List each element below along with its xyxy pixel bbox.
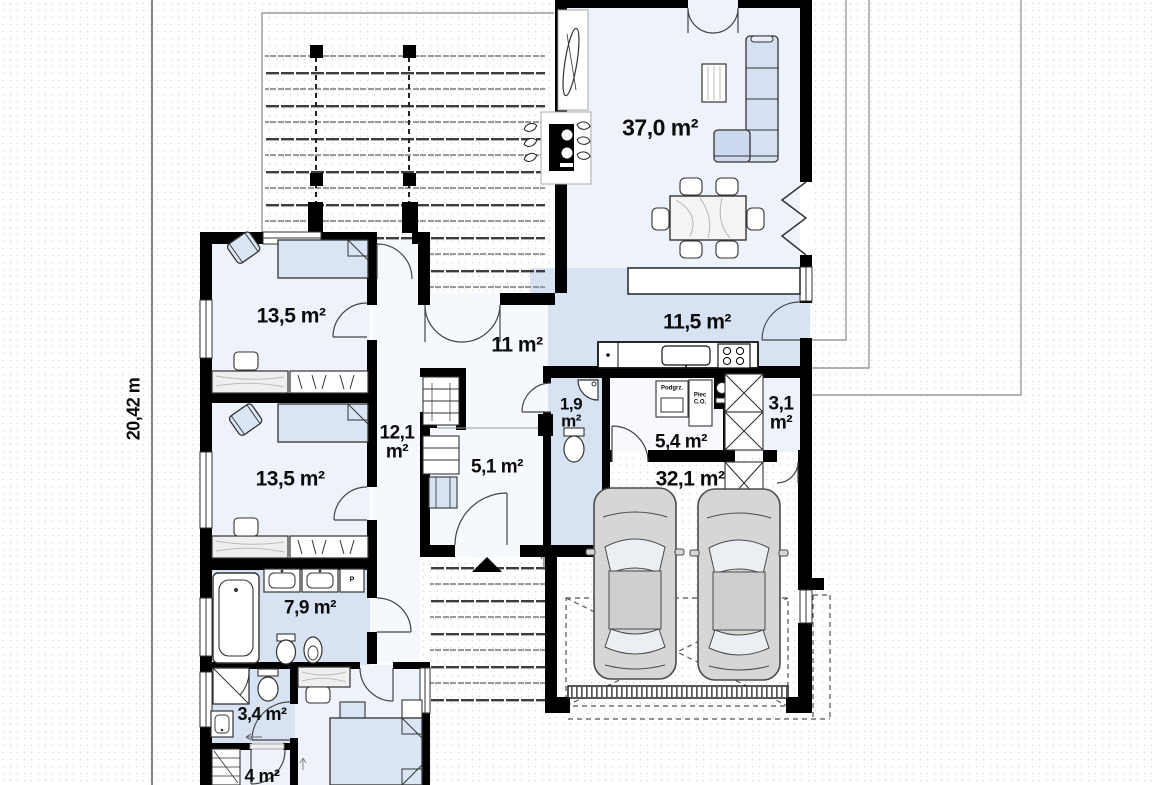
label-water-heater: Podgrz. (661, 386, 683, 393)
car-left (586, 488, 684, 679)
label-garage-area: 32,1 m² (656, 468, 725, 489)
label-bathroom-area: 7,9 m² (284, 598, 336, 617)
label-boiler: Piec C.O. (692, 392, 708, 405)
label-wardrobe-room-area: 4 m² (244, 767, 279, 785)
tv-cabinet (702, 64, 726, 102)
window-bedroom1-left (200, 300, 212, 358)
label-plot-dimension: 20,42 m (124, 378, 145, 441)
bed2 (278, 404, 368, 442)
shower-room-toilet (258, 669, 278, 701)
entrance-porch (430, 554, 547, 706)
bed3 (330, 718, 422, 785)
wc-toilet (564, 428, 584, 462)
shower (213, 668, 249, 704)
small-sink (211, 711, 233, 737)
label-shower-room-area: 3,4 m² (237, 705, 286, 723)
nightstand-left (340, 702, 365, 720)
kitchen-counter (598, 342, 758, 368)
label-wc-area: 1,9 m² (551, 396, 591, 431)
label-corridor-area: 12,1 m² (370, 424, 424, 463)
car-right (690, 489, 788, 680)
label-towel-cabinet: P (350, 576, 355, 583)
window-living-right (800, 267, 812, 301)
floor-plan-svg (0, 0, 1152, 785)
label-kitchen-area: 11,5 m² (663, 311, 731, 332)
nightstand-right (402, 700, 422, 718)
wardrobe-room-shelves (212, 749, 240, 785)
window-shower-room-left (200, 672, 212, 727)
bathtub (213, 573, 259, 663)
label-hall-area: 11 m² (491, 334, 542, 355)
bidet (304, 637, 322, 663)
label-bedroom2-area: 13,5 m² (256, 468, 325, 489)
wardrobe2 (290, 536, 368, 558)
label-bedroom1-area: 13,5 m² (257, 305, 326, 326)
bed1 (278, 240, 368, 278)
label-closet-area: 3,1 m² (758, 395, 804, 434)
decor-niche (558, 10, 588, 110)
toilet (277, 634, 296, 664)
kitchen-sink (662, 346, 710, 368)
floor-plan-canvas: 37,0 m² 11,5 m² 11 m² 13,5 m² 13,5 m² 12… (0, 0, 1152, 785)
label-vestibule-area: 5,1 m² (471, 457, 523, 476)
label-living-area: 37,0 m² (622, 116, 698, 139)
window-bathroom-left (200, 598, 212, 656)
window-bedroom2-left (200, 452, 212, 528)
label-boiler-room-area: 5,4 m² (655, 432, 707, 451)
wardrobe1 (290, 371, 368, 393)
cooktop (718, 344, 750, 368)
garage-contents (568, 488, 788, 698)
kitchen-island (628, 268, 800, 294)
window-garage-right (800, 590, 812, 623)
